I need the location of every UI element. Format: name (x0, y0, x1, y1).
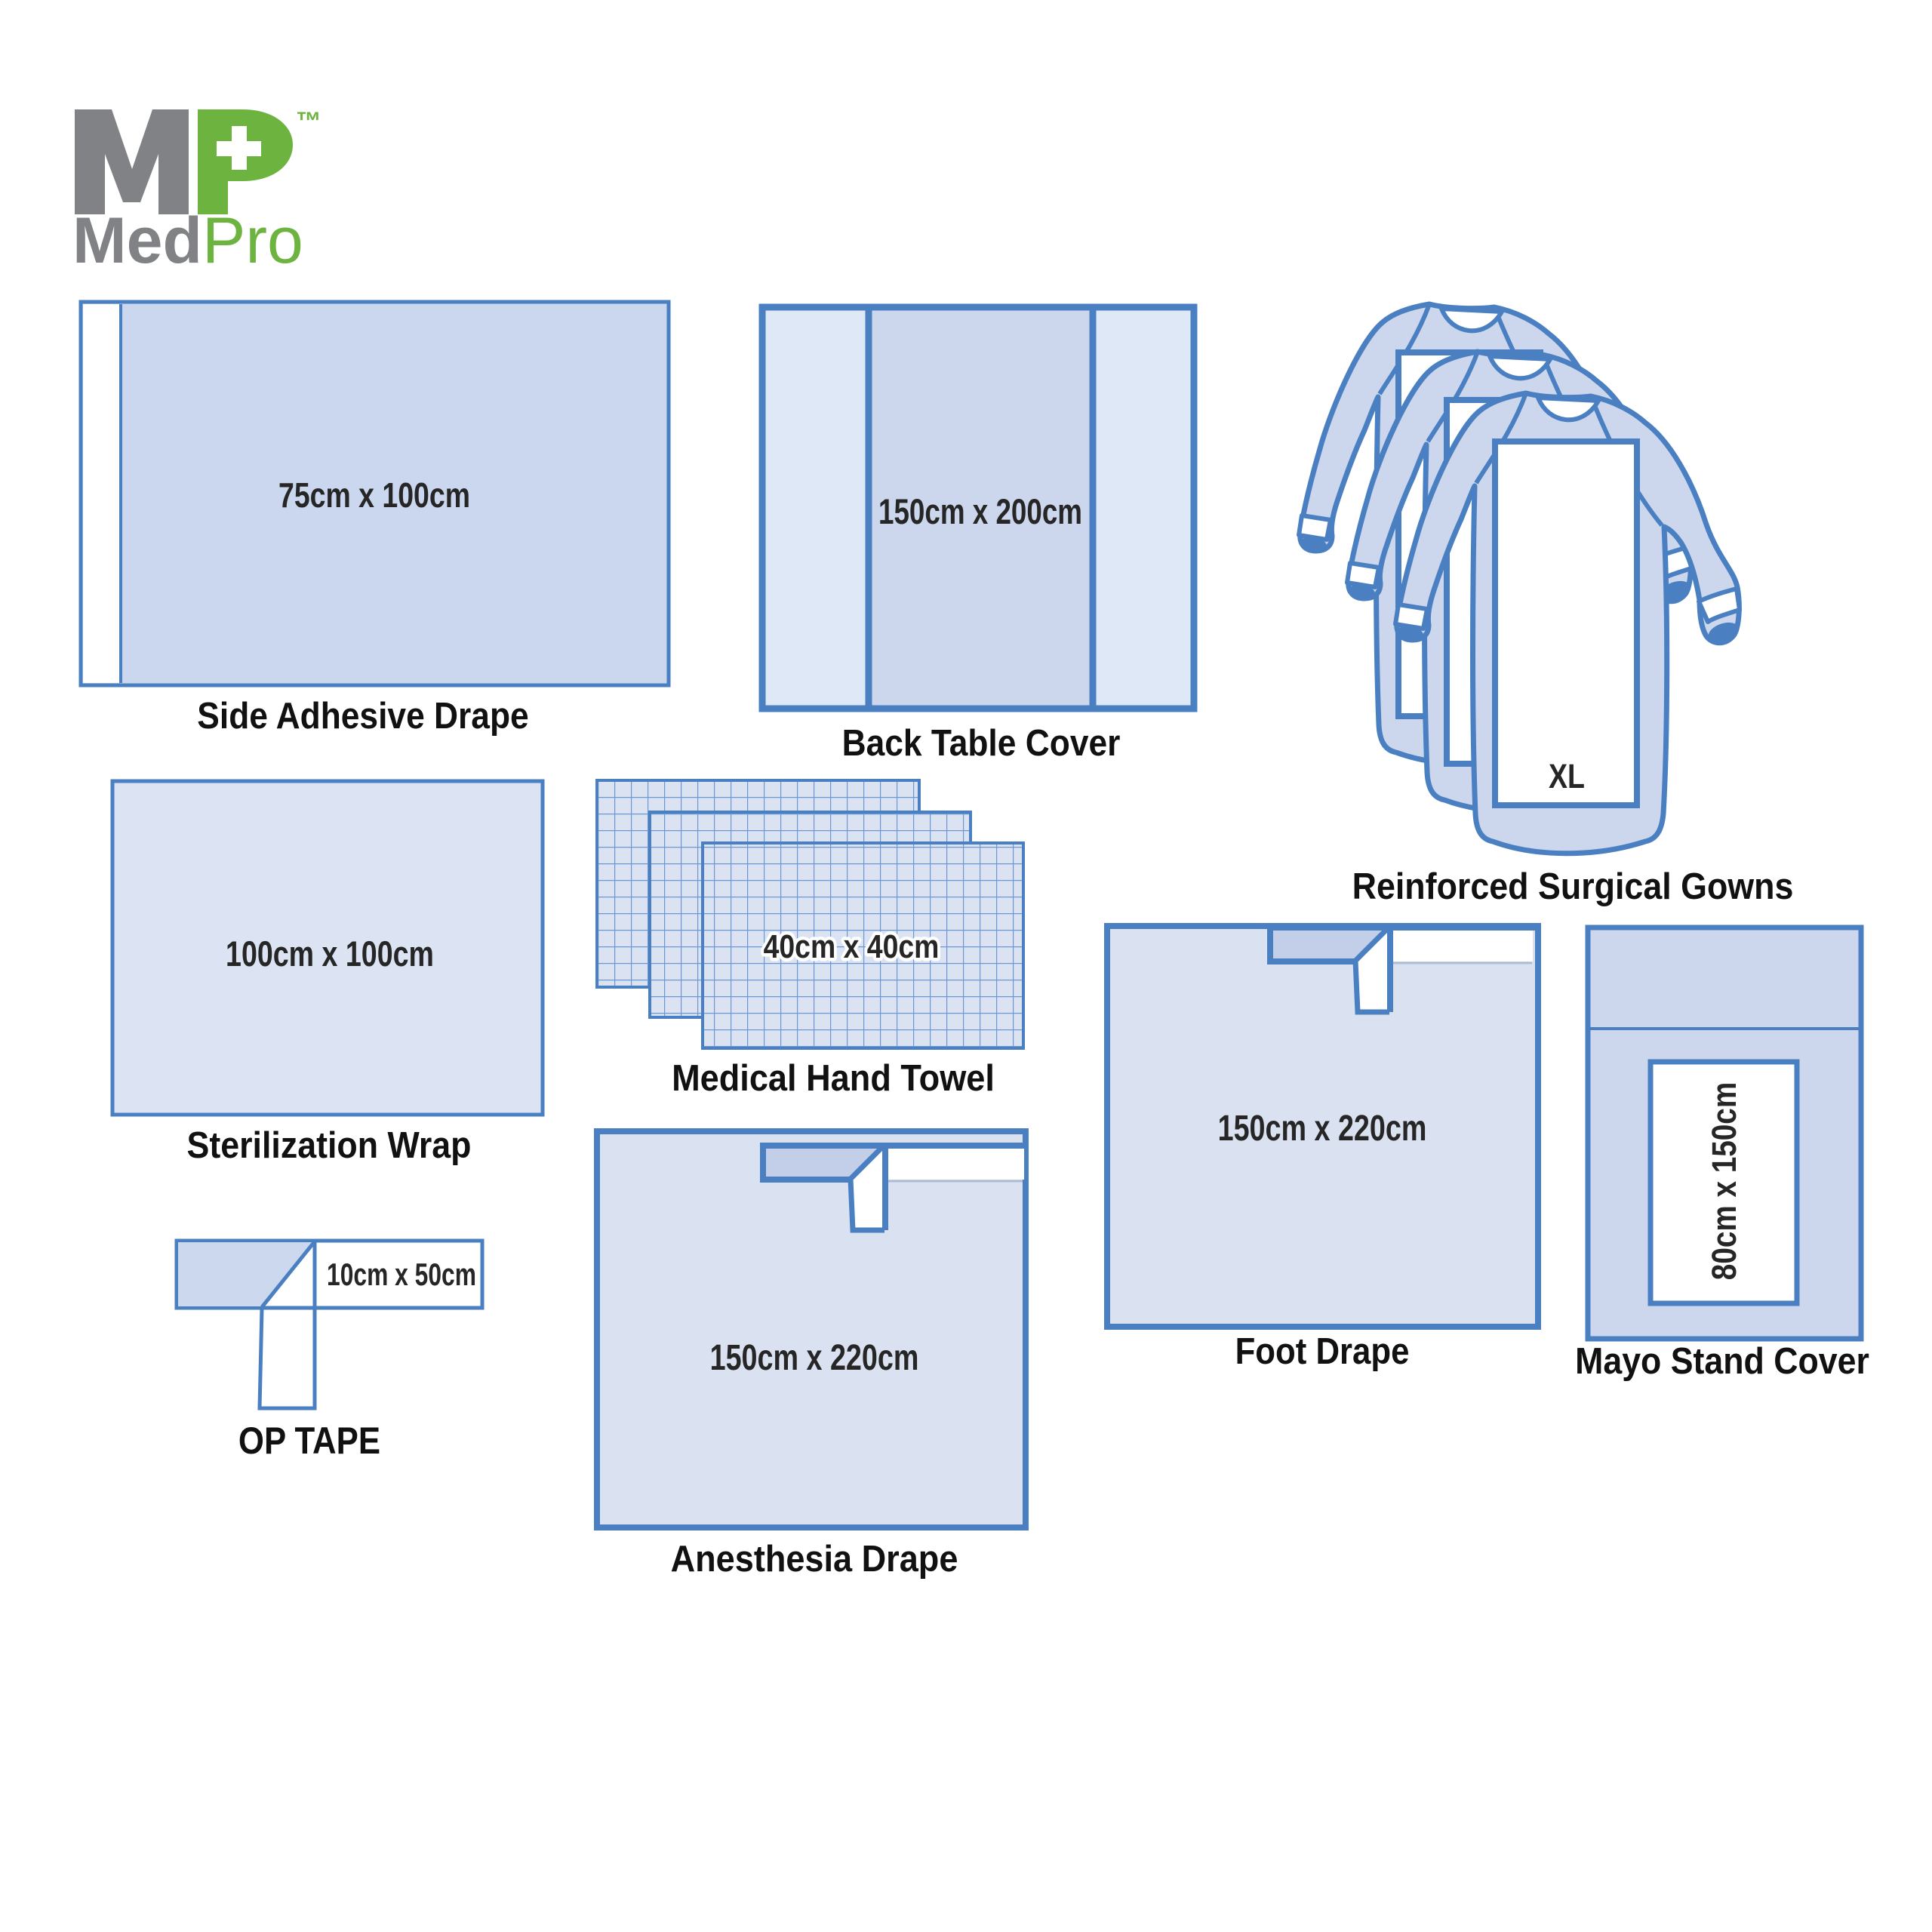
svg-text:OP TAPE: OP TAPE (238, 1419, 380, 1461)
svg-text:Sterilization Wrap: Sterilization Wrap (187, 1124, 472, 1165)
svg-text:150cm x 220cm: 150cm x 220cm (710, 1338, 919, 1378)
svg-text:150cm x 200cm: 150cm x 200cm (878, 492, 1082, 531)
svg-text:Medical Hand Towel: Medical Hand Towel (672, 1057, 995, 1098)
svg-text:Reinforced Surgical Gowns: Reinforced Surgical Gowns (1352, 866, 1794, 906)
svg-text:Side Adhesive Drape: Side Adhesive Drape (197, 695, 528, 737)
svg-text:150cm x 220cm: 150cm x 220cm (1218, 1109, 1427, 1149)
svg-text:MedPro: MedPro (72, 205, 303, 277)
svg-text:100cm x 100cm: 100cm x 100cm (226, 934, 434, 974)
svg-text:Mayo Stand Cover: Mayo Stand Cover (1575, 1340, 1869, 1381)
svg-text:™: ™ (296, 107, 321, 136)
svg-text:XL: XL (1549, 757, 1585, 795)
svg-text:Back Table Cover: Back Table Cover (842, 722, 1121, 764)
svg-text:Anesthesia Drape: Anesthesia Drape (671, 1537, 958, 1579)
svg-text:75cm x 100cm: 75cm x 100cm (278, 475, 470, 515)
svg-text:10cm x 50cm: 10cm x 50cm (327, 1257, 476, 1292)
svg-text:80cm x 150cm: 80cm x 150cm (1705, 1082, 1743, 1280)
svg-text:Foot Drape: Foot Drape (1235, 1331, 1410, 1372)
svg-text:40cm x 40cm: 40cm x 40cm (764, 928, 940, 965)
